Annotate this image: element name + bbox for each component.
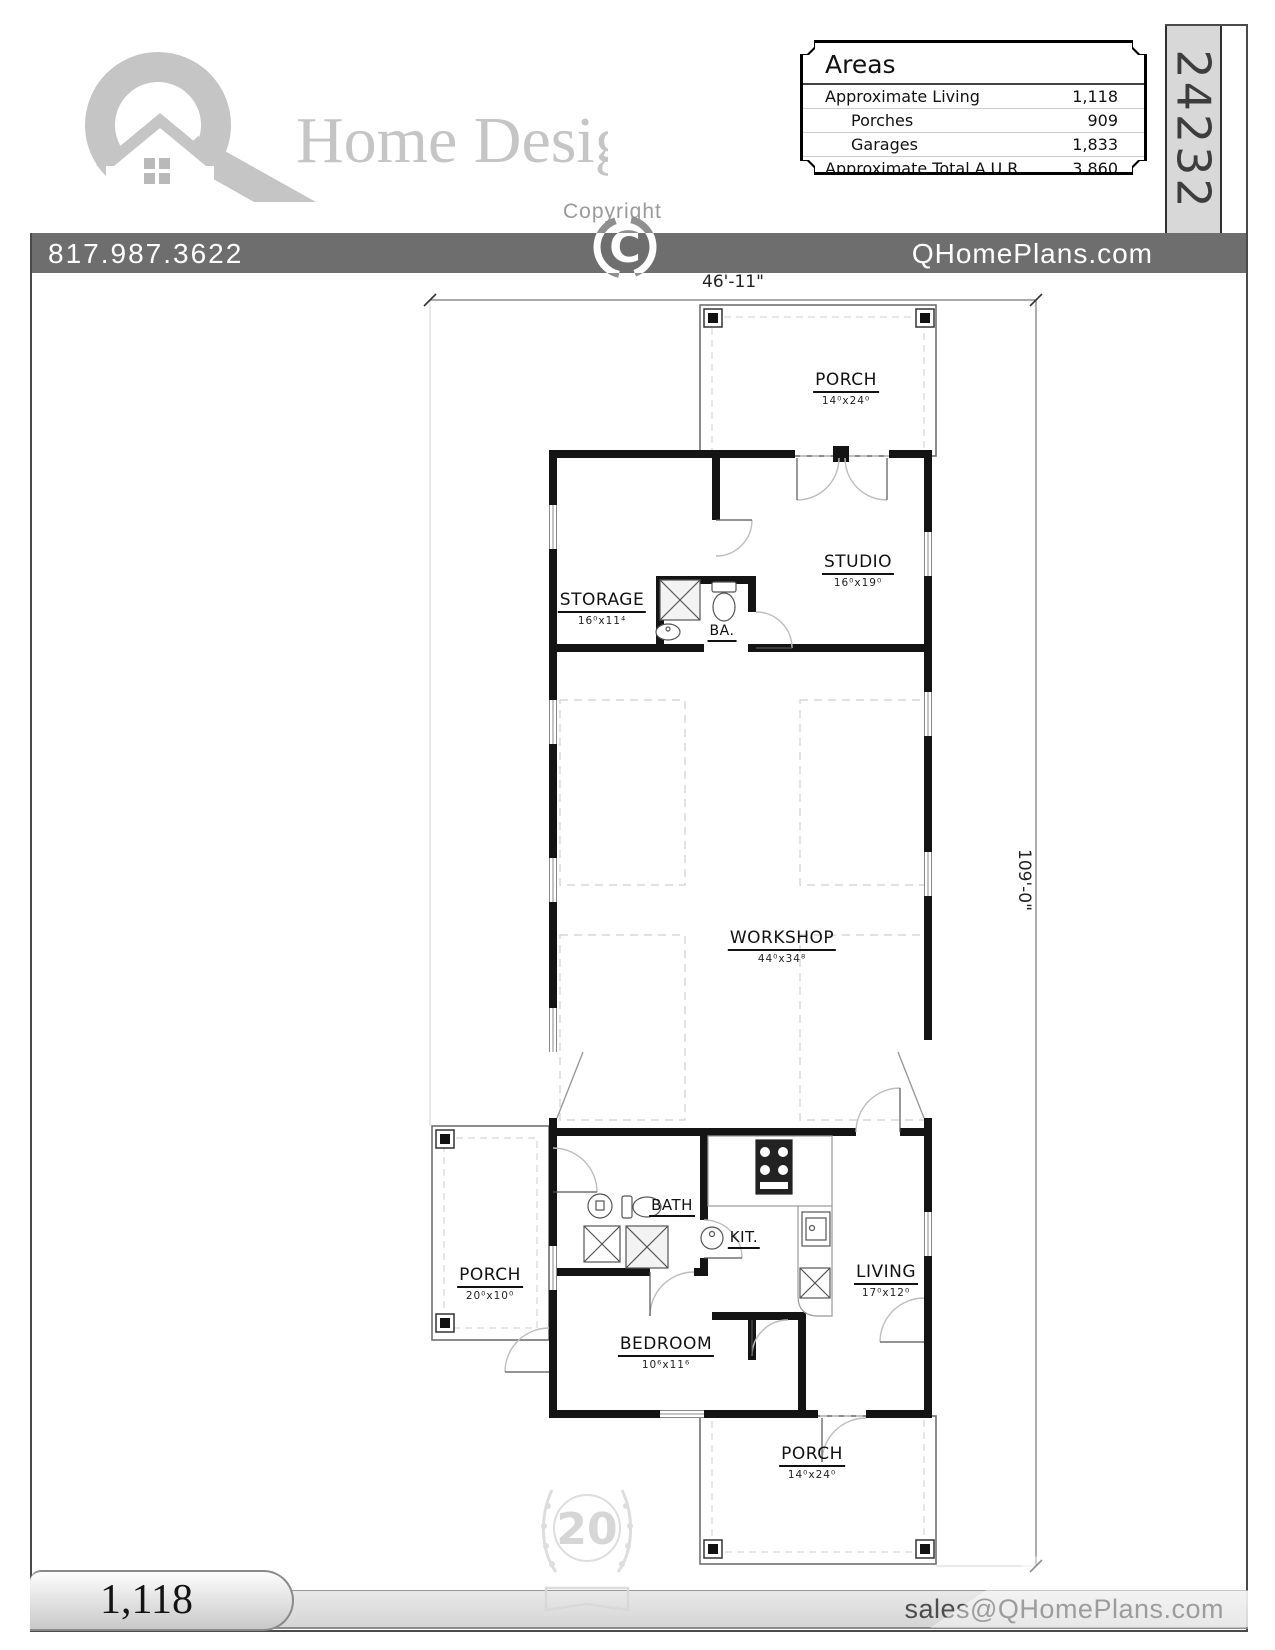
toilet-icon: [712, 582, 736, 621]
room-label-bath: BATH: [649, 1196, 695, 1217]
water-heater-icon: [588, 1194, 612, 1218]
contact-email: sales@QHomePlans.com: [904, 1594, 1224, 1625]
living-area-tab: 1,118: [30, 1570, 294, 1631]
room-label-workshop: WORKSHOP 44⁰x34⁸: [728, 928, 836, 965]
room-label-kit: KIT.: [728, 1228, 760, 1249]
roof-outline-dashed: [560, 700, 925, 1120]
room-label-bedroom: BEDROOM 10⁶x11⁶: [618, 1334, 714, 1371]
refrigerator-icon: [800, 1268, 830, 1298]
copyright-c-emblem: C: [588, 210, 662, 284]
room-label-porch-left: PORCH 20⁰x10⁰: [457, 1265, 523, 1302]
badge-years-text: 20: [556, 1504, 617, 1555]
room-label-ba: BA.: [708, 622, 737, 642]
kitchen-sink-icon: [802, 1212, 830, 1246]
shower-icon: [660, 580, 700, 620]
overall-width-dimension: 46'-11": [702, 272, 764, 292]
washer-icon: [584, 1226, 620, 1262]
room-label-porch-top: PORCH 14⁰x24⁰: [813, 370, 879, 407]
room-label-studio: STUDIO 16⁰x19⁰: [822, 552, 894, 589]
living-area-value: 1,118: [100, 1576, 193, 1624]
workshop-door-leaves: [557, 1052, 924, 1118]
overall-depth-dimension: 109'-0": [1014, 849, 1034, 911]
plan-sheet: Home Designs Copyright 817.987.3622 QHom…: [0, 0, 1275, 1650]
room-label-storage: STORAGE 16⁰x11⁴: [558, 590, 646, 627]
pedestal-sink-icon: [701, 1227, 723, 1249]
anniversary-badge: 20: [532, 1470, 642, 1635]
room-label-porch-bottom: PORCH 14⁰x24⁰: [779, 1444, 845, 1481]
shower-icon: [626, 1226, 668, 1268]
room-label-living: LIVING 17⁰x12⁰: [854, 1262, 918, 1299]
stove-icon: [756, 1140, 792, 1194]
sink-icon: [656, 624, 680, 640]
